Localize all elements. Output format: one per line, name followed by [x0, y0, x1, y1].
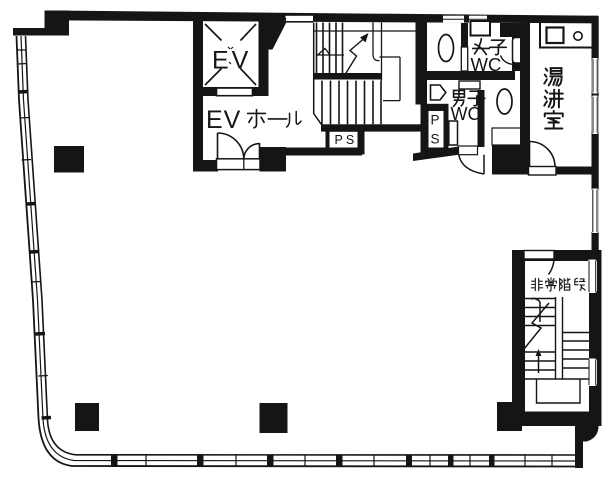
svg-text:EV: EV: [206, 106, 241, 134]
svg-text:PS: PS: [335, 133, 358, 147]
svg-text:EV: EV: [212, 47, 251, 75]
svg-text:P: P: [431, 113, 440, 128]
svg-text:S: S: [431, 132, 440, 147]
